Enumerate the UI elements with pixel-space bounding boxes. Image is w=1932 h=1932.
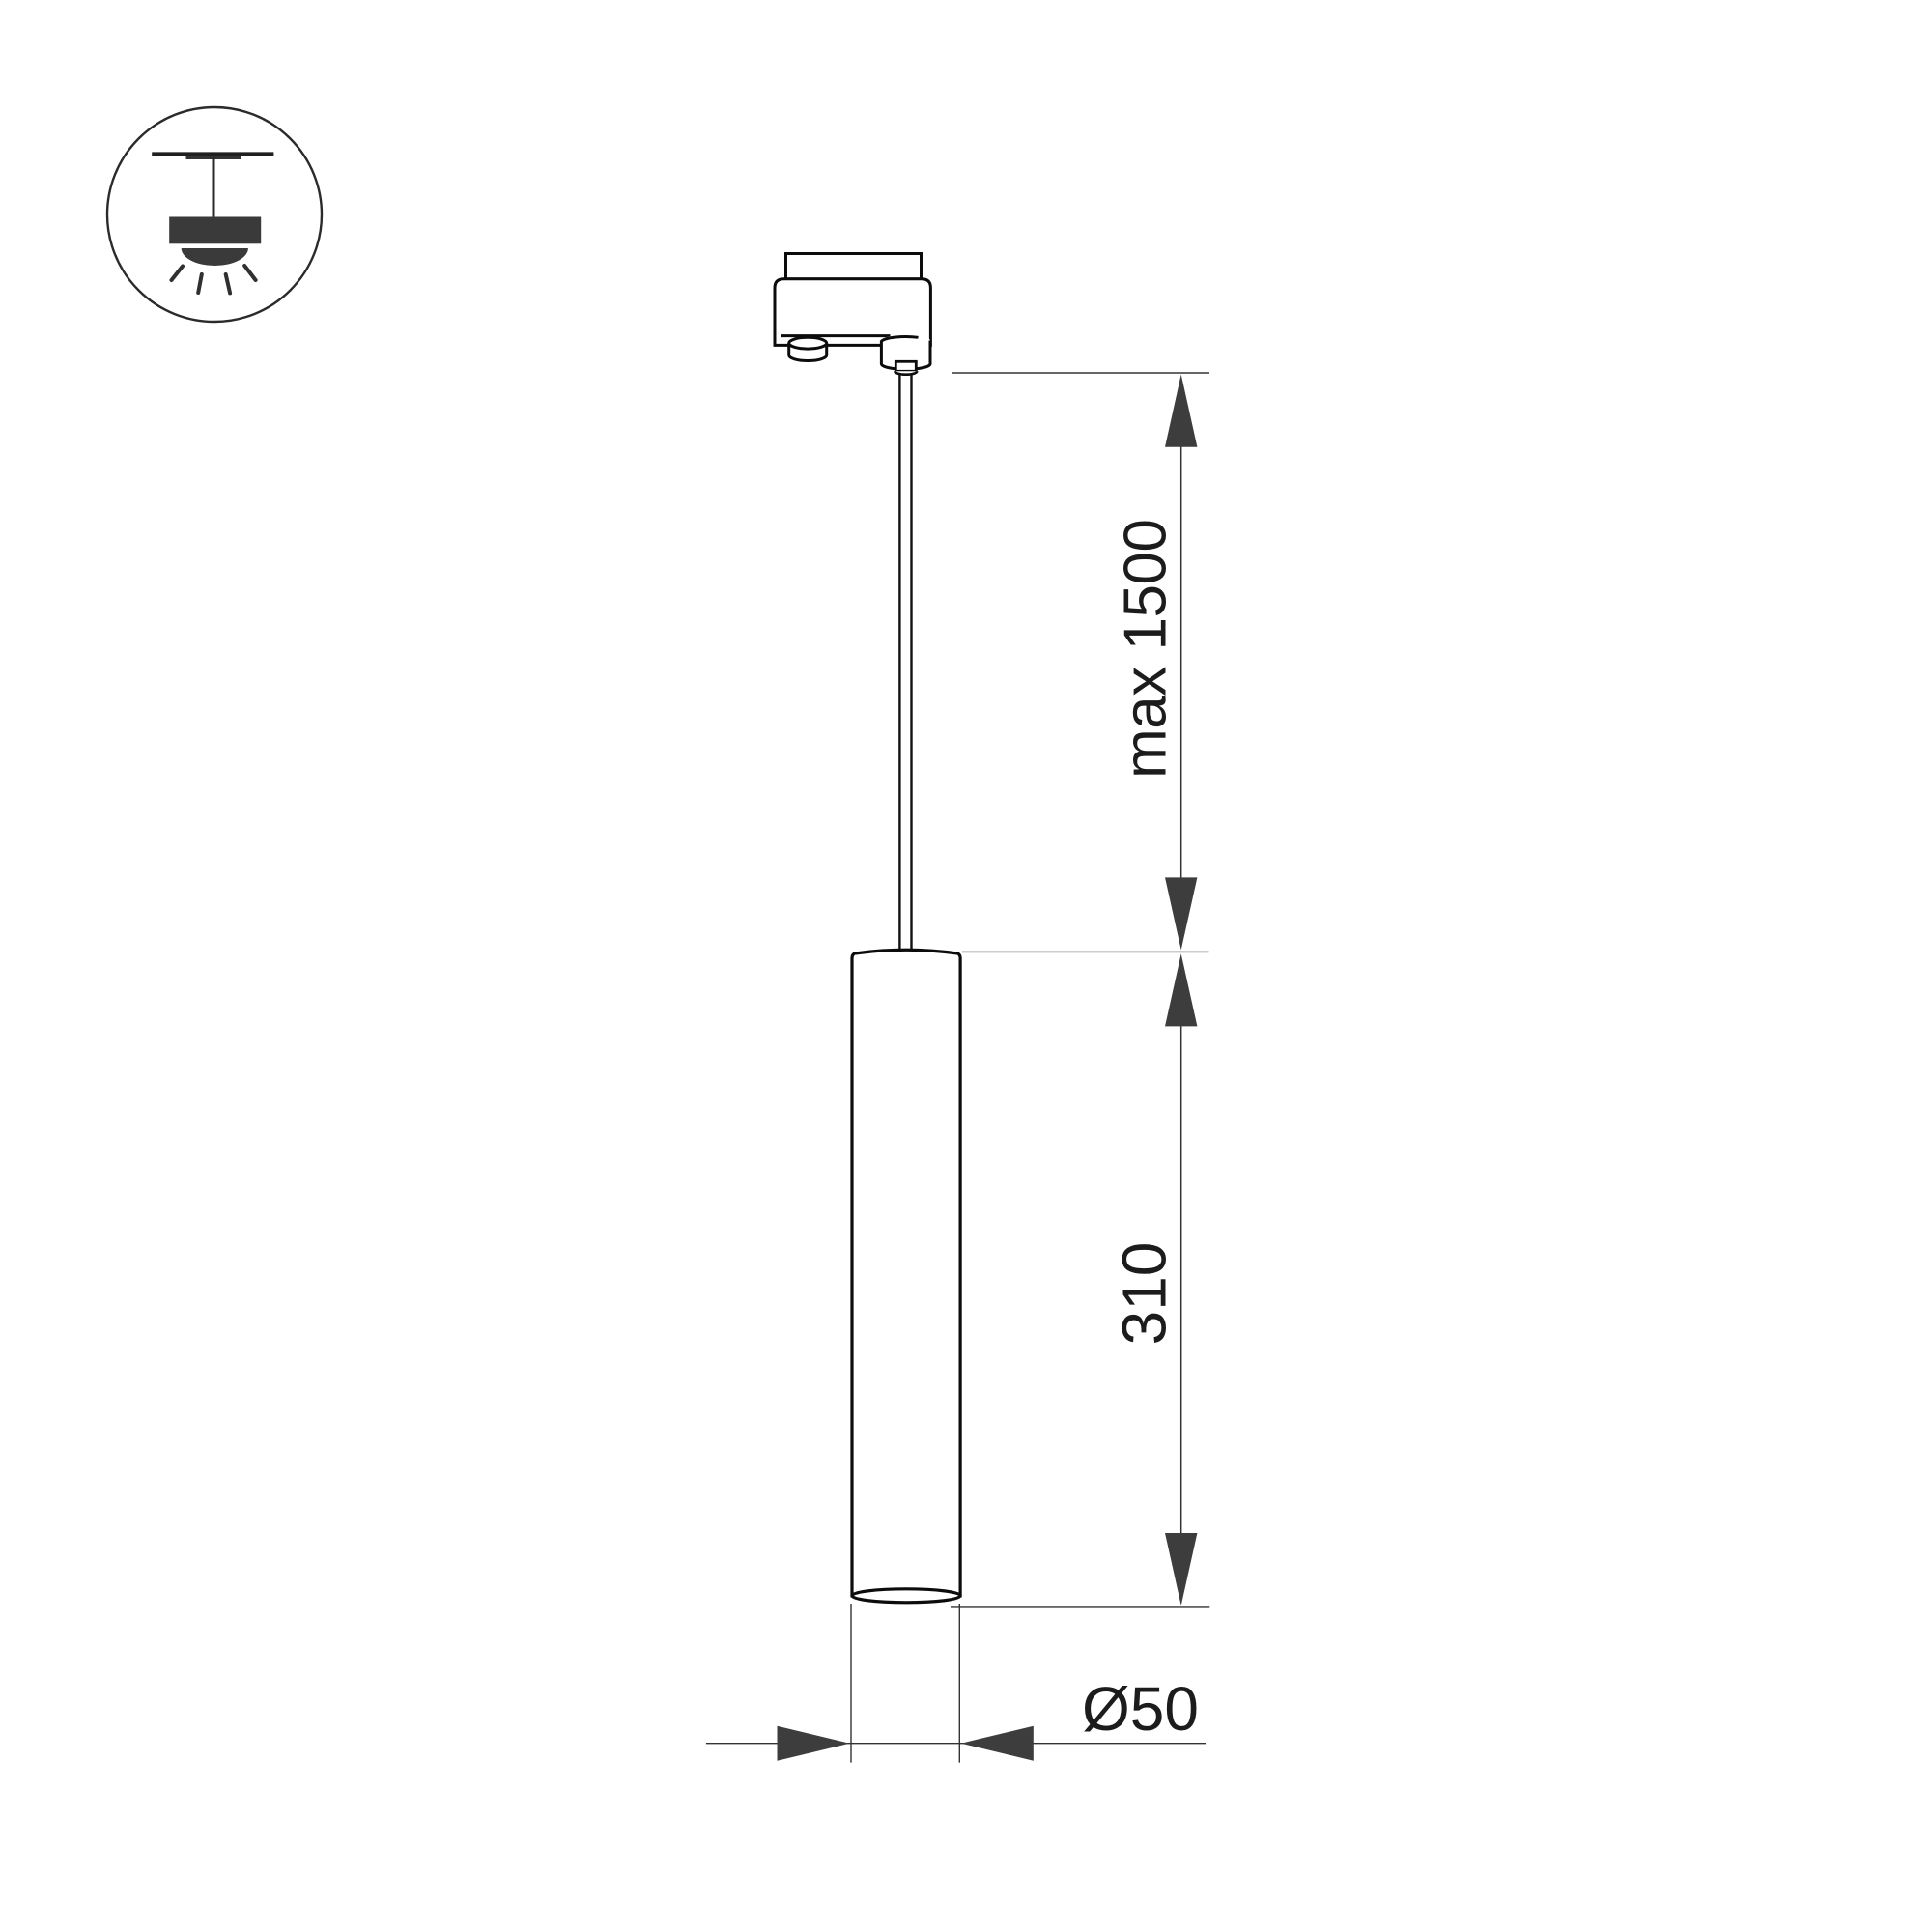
svg-text:max 1500: max 1500 [1113, 520, 1179, 779]
svg-text:Ø50: Ø50 [1082, 1674, 1199, 1744]
svg-text:310: 310 [1110, 1242, 1179, 1346]
